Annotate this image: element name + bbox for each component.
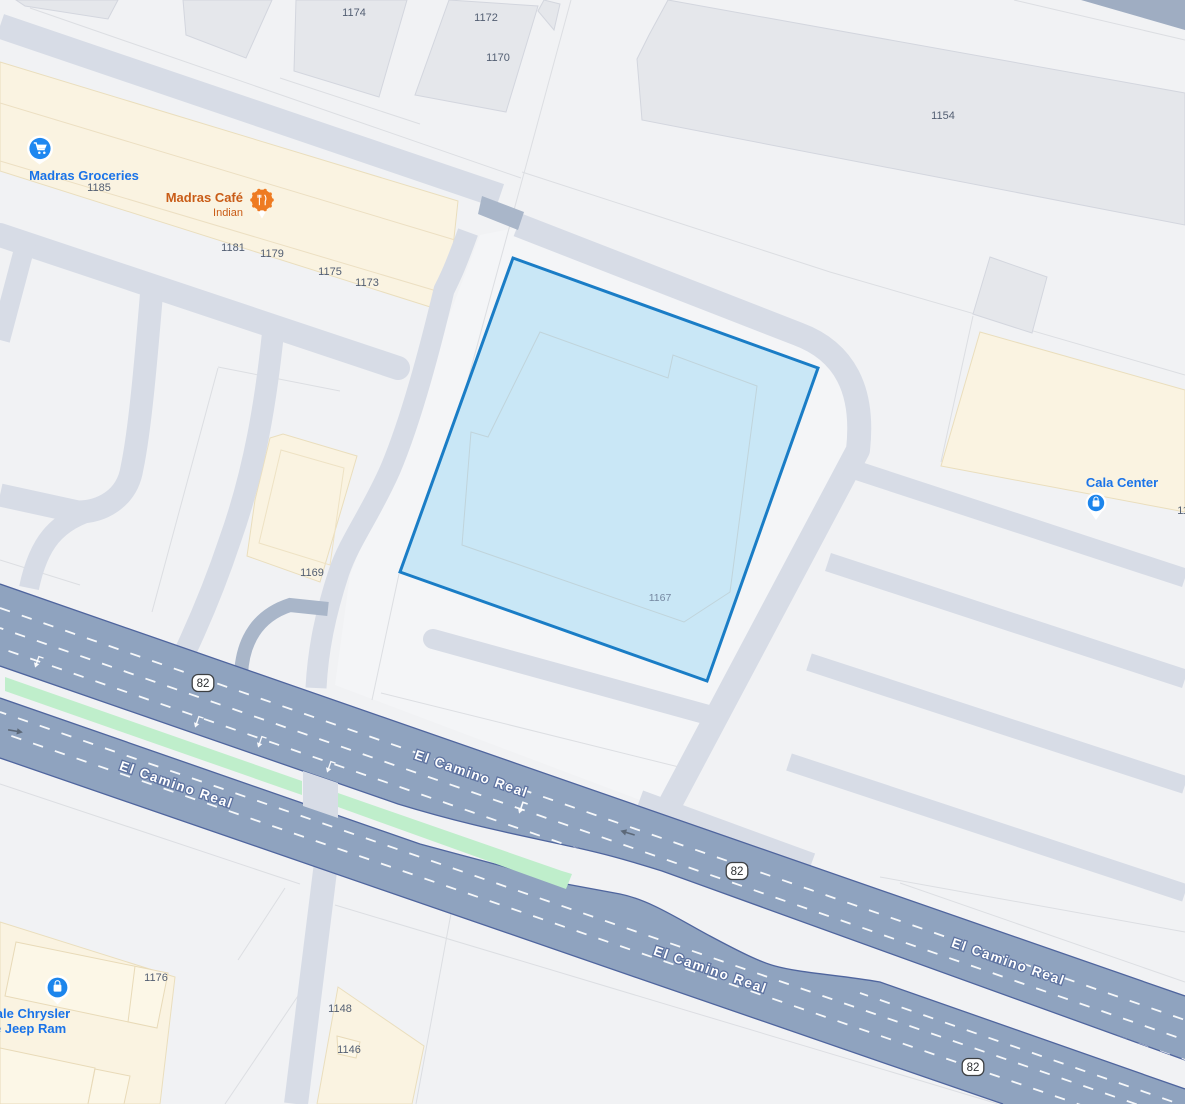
svg-text:1176: 1176 bbox=[144, 972, 168, 984]
svg-text:82: 82 bbox=[731, 866, 744, 878]
svg-text:1173: 1173 bbox=[355, 277, 379, 289]
svg-text:1172: 1172 bbox=[474, 12, 498, 24]
svg-text:ale Chrysler: ale Chrysler bbox=[0, 1006, 70, 1021]
svg-text:1174: 1174 bbox=[342, 7, 366, 19]
svg-text:1181: 1181 bbox=[221, 242, 245, 254]
svg-text:Madras Groceries: Madras Groceries bbox=[29, 168, 139, 183]
svg-text:1146: 1146 bbox=[337, 1044, 361, 1056]
svg-text:82: 82 bbox=[967, 1062, 980, 1074]
svg-text:Cala Center: Cala Center bbox=[1086, 475, 1158, 490]
svg-text:1167: 1167 bbox=[649, 592, 672, 604]
svg-text:1169: 1169 bbox=[300, 567, 324, 579]
svg-text:1185: 1185 bbox=[87, 182, 111, 194]
svg-text:1170: 1170 bbox=[486, 52, 510, 64]
svg-text:1154: 1154 bbox=[931, 110, 955, 122]
svg-text:e Jeep Ram: e Jeep Ram bbox=[0, 1021, 66, 1036]
svg-text:Indian: Indian bbox=[213, 207, 243, 219]
svg-text:1148: 1148 bbox=[328, 1003, 352, 1015]
svg-text:11: 11 bbox=[1177, 505, 1185, 517]
svg-text:Madras Café: Madras Café bbox=[166, 190, 243, 205]
svg-text:1179: 1179 bbox=[260, 248, 284, 260]
svg-text:82: 82 bbox=[197, 678, 210, 690]
svg-text:1175: 1175 bbox=[318, 266, 342, 278]
